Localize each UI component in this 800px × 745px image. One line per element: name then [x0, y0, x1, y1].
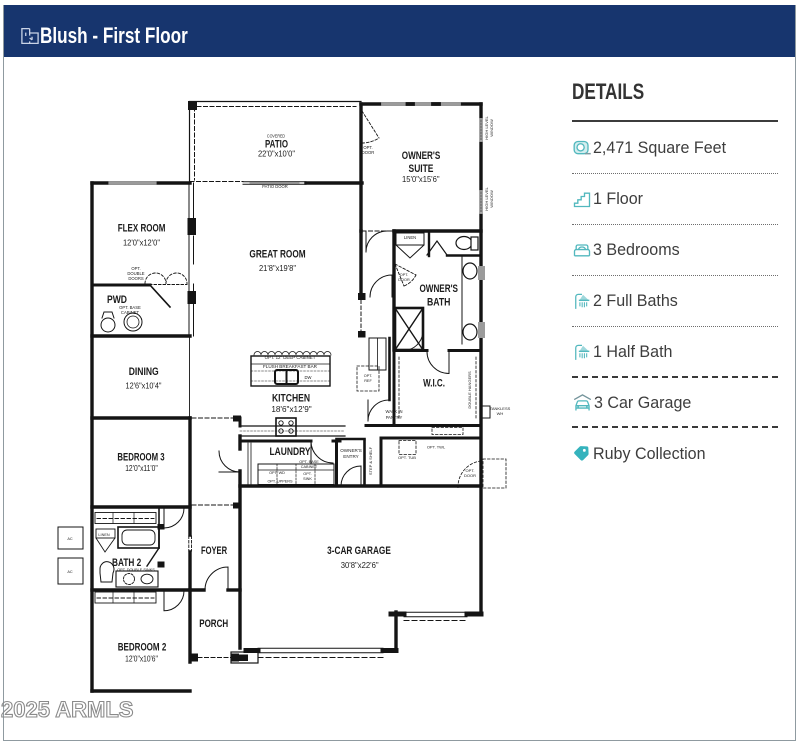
svg-text:DOOR: DOOR [362, 150, 375, 155]
svg-text:LAUNDRY: LAUNDRY [269, 446, 310, 458]
svg-text:BATH: BATH [427, 297, 450, 309]
svg-text:DOUBLE HANGERS: DOUBLE HANGERS [467, 371, 472, 409]
svg-text:LINEN: LINEN [98, 533, 109, 537]
svg-text:WINDOW: WINDOW [489, 190, 494, 208]
svg-text:DINING: DINING [129, 366, 159, 378]
svg-text:FOYER: FOYER [201, 545, 227, 558]
svg-text:WINDOW: WINDOW [489, 119, 494, 137]
svg-text:DW: DW [305, 375, 312, 380]
svg-text:21'8"x19'8": 21'8"x19'8" [259, 264, 296, 273]
svg-text:BEDROOM 2: BEDROOM 2 [118, 641, 167, 654]
svg-text:OPT.: OPT. [400, 273, 408, 277]
svg-text:OPT. TUB: OPT. TUB [398, 455, 416, 460]
svg-text:OPT. UPPERS: OPT. UPPERS [267, 480, 293, 484]
svg-text:DOORS: DOORS [128, 276, 144, 281]
svg-text:OPT.: OPT. [303, 472, 311, 476]
svg-text:18'6"x12'9": 18'6"x12'9" [271, 405, 311, 414]
svg-text:SUITE: SUITE [409, 163, 434, 175]
svg-text:AC: AC [67, 570, 73, 574]
svg-text:SINK: SINK [303, 477, 312, 481]
svg-text:OWNER'S: OWNER'S [340, 448, 362, 453]
svg-text:OPT.: OPT. [364, 374, 372, 378]
svg-text:LINEN: LINEN [404, 235, 416, 240]
svg-text:12'6"x10'4": 12'6"x10'4" [126, 381, 162, 391]
svg-text:PATIO DOOR: PATIO DOOR [262, 184, 288, 189]
svg-text:30'8"x22'6": 30'8"x22'6" [341, 561, 379, 570]
svg-text:FLUSH BREAKFAST BAR: FLUSH BREAKFAST BAR [263, 364, 318, 369]
svg-text:12'0"x10'6": 12'0"x10'6" [125, 654, 158, 664]
svg-text:DOOR: DOOR [398, 278, 410, 282]
svg-text:OPT. DOUBLE SINKS: OPT. DOUBLE SINKS [117, 568, 155, 572]
svg-text:W.I.C.: W.I.C. [423, 377, 445, 390]
svg-text:STEP & SHELF: STEP & SHELF [368, 446, 373, 475]
svg-text:GREAT ROOM: GREAT ROOM [249, 248, 305, 260]
svg-text:CABINET: CABINET [121, 310, 140, 315]
svg-text:DOOR: DOOR [464, 473, 476, 478]
svg-text:OPT. WD: OPT. WD [269, 471, 285, 475]
svg-text:KITCHEN: KITCHEN [272, 393, 310, 405]
svg-text:REF: REF [364, 379, 372, 383]
svg-text:12'0"x11'0": 12'0"x11'0" [125, 463, 158, 473]
svg-text:CABINET: CABINET [301, 465, 318, 469]
svg-text:AC: AC [67, 537, 73, 541]
svg-text:3-CAR GARAGE: 3-CAR GARAGE [327, 545, 391, 557]
svg-text:OPT. TWL: OPT. TWL [427, 445, 446, 450]
svg-text:WALK IN: WALK IN [385, 409, 402, 414]
svg-text:OPT. BASE: OPT. BASE [299, 460, 319, 464]
svg-text:22'0"x10'0": 22'0"x10'0" [258, 149, 295, 158]
svg-text:PANTRY: PANTRY [386, 415, 403, 420]
svg-text:ENTRY: ENTRY [343, 454, 359, 459]
svg-text:WH: WH [497, 411, 504, 416]
svg-text:OPT. 12" DEEP CABINET: OPT. 12" DEEP CABINET [265, 355, 316, 360]
svg-text:OWNER'S: OWNER'S [419, 283, 458, 296]
svg-text:12'0"x12'0": 12'0"x12'0" [123, 238, 160, 247]
svg-text:OWNER'S: OWNER'S [402, 150, 441, 163]
svg-text:FLEX ROOM: FLEX ROOM [118, 222, 166, 235]
svg-text:15'0"x15'6": 15'0"x15'6" [402, 175, 440, 184]
svg-text:PORCH: PORCH [199, 618, 228, 631]
